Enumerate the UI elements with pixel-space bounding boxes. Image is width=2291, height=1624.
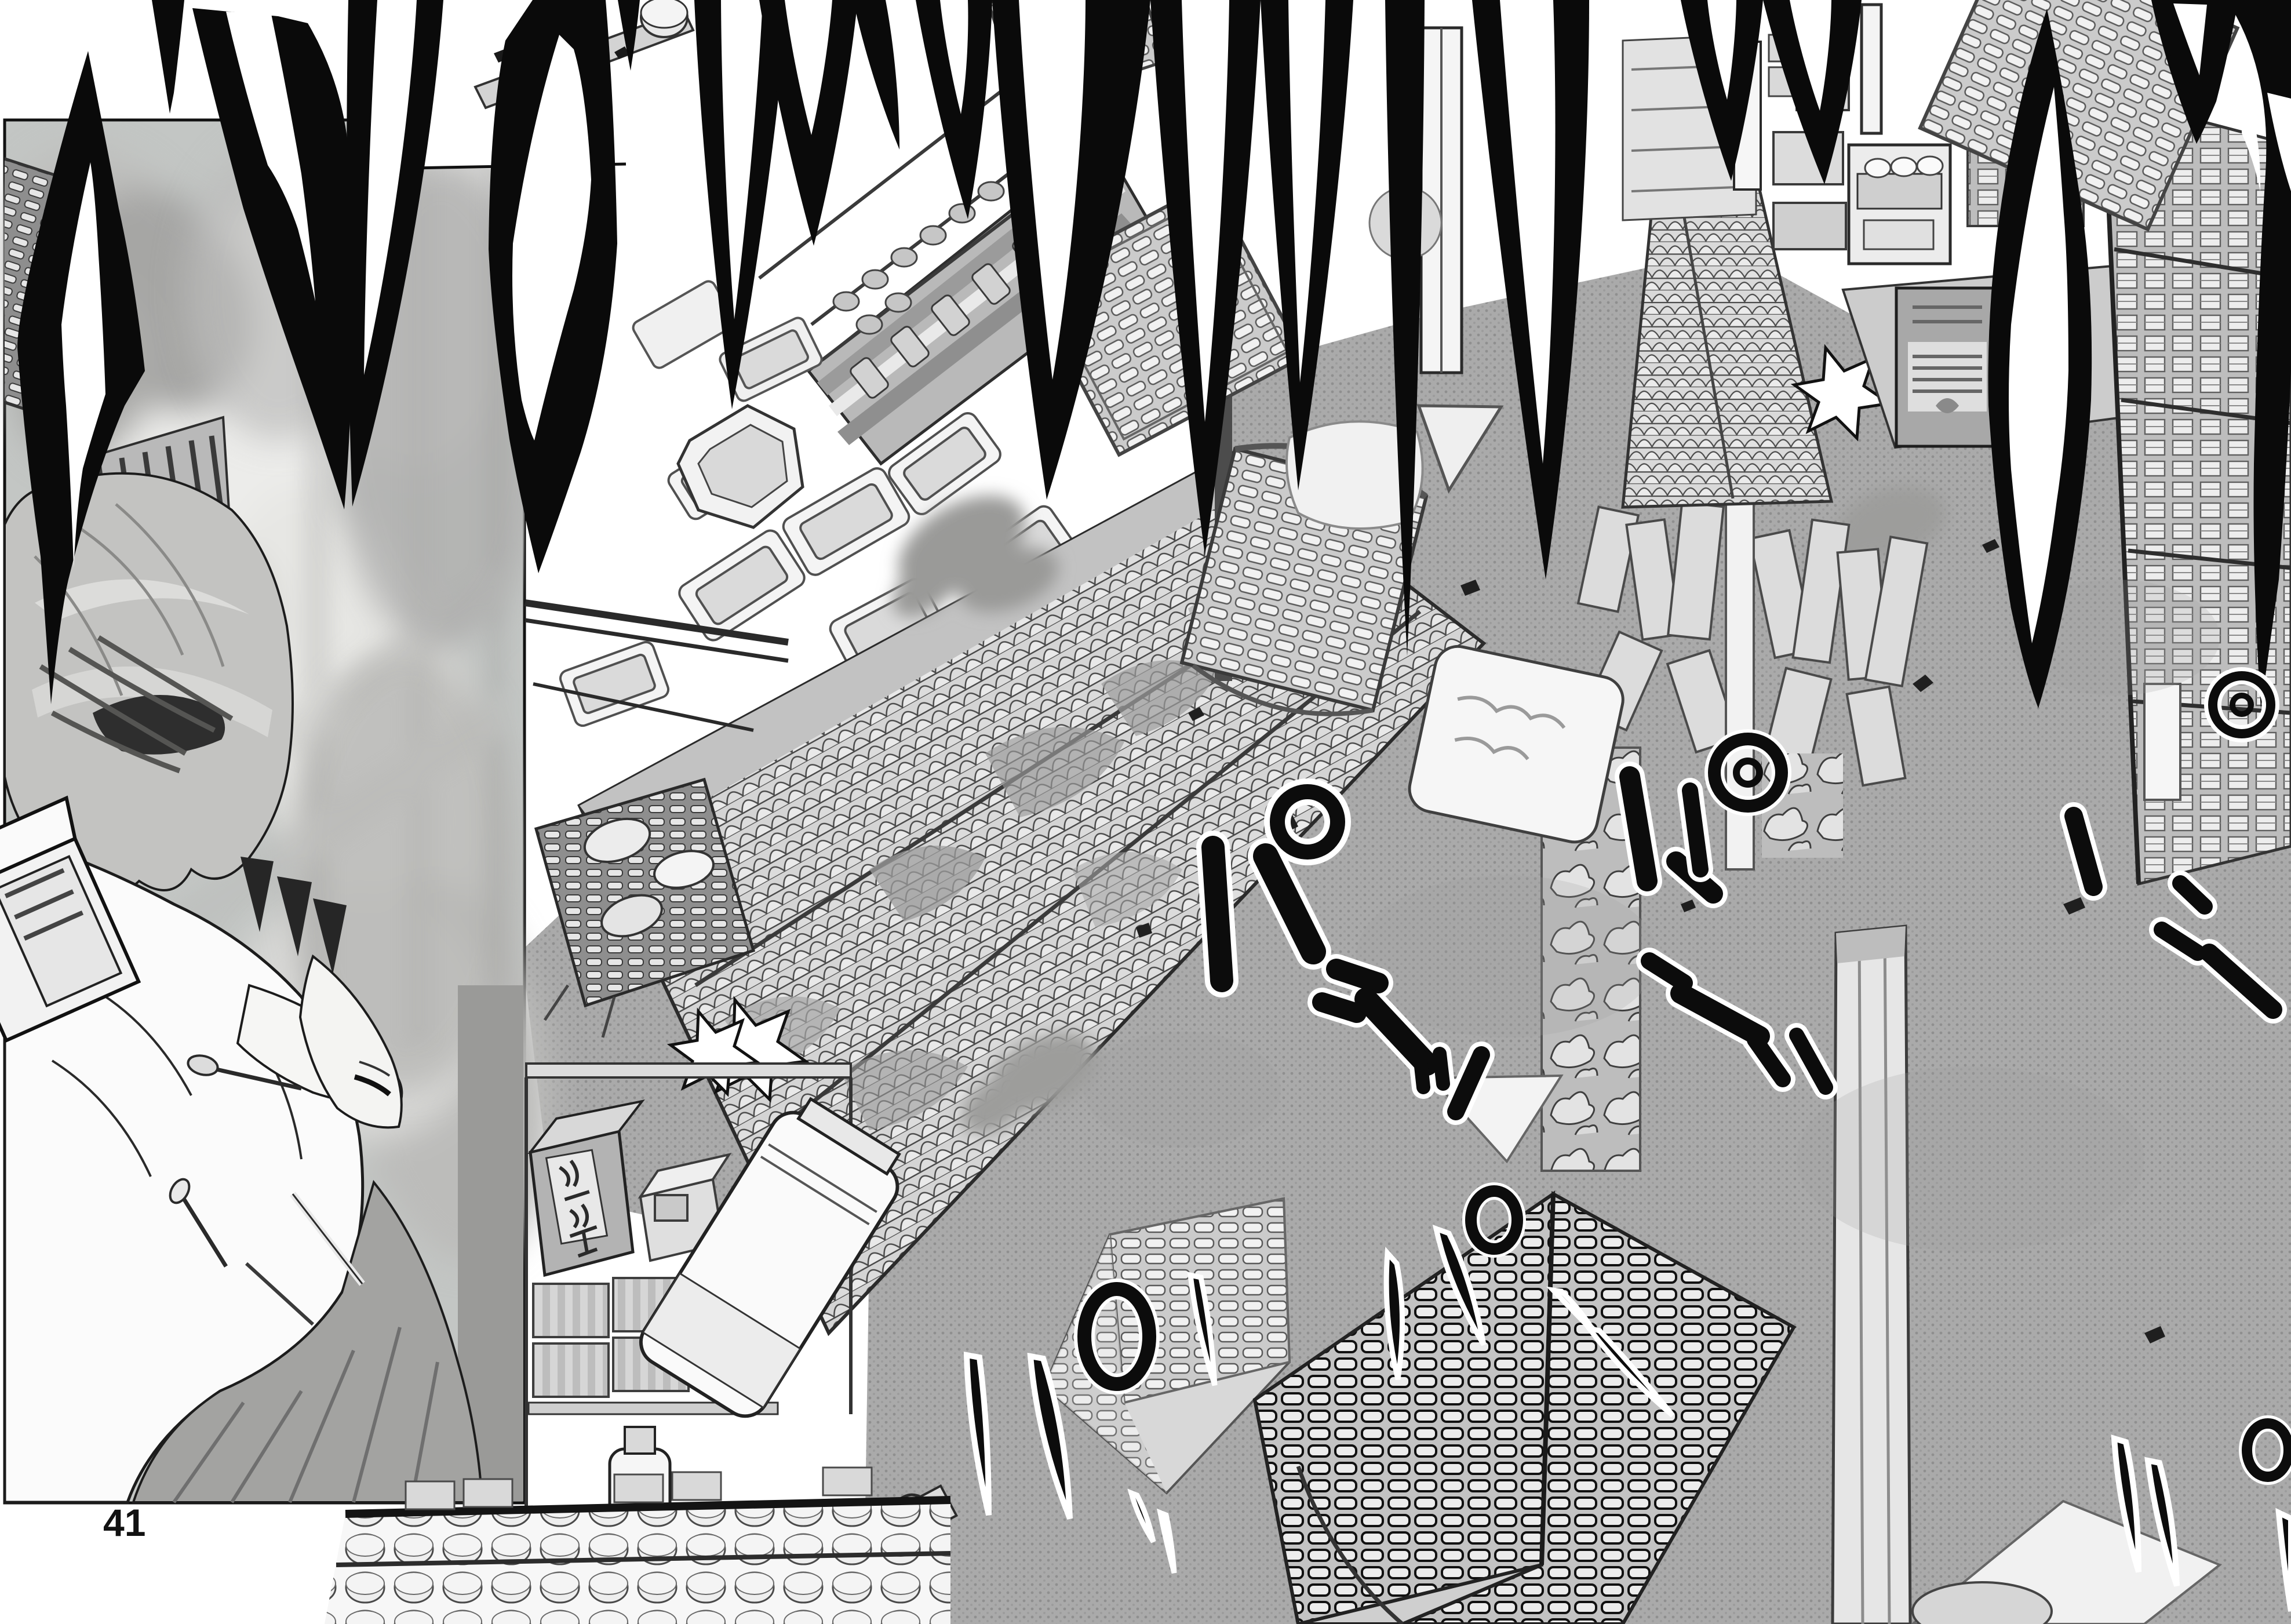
svg-text:41: 41 <box>103 1501 145 1544</box>
